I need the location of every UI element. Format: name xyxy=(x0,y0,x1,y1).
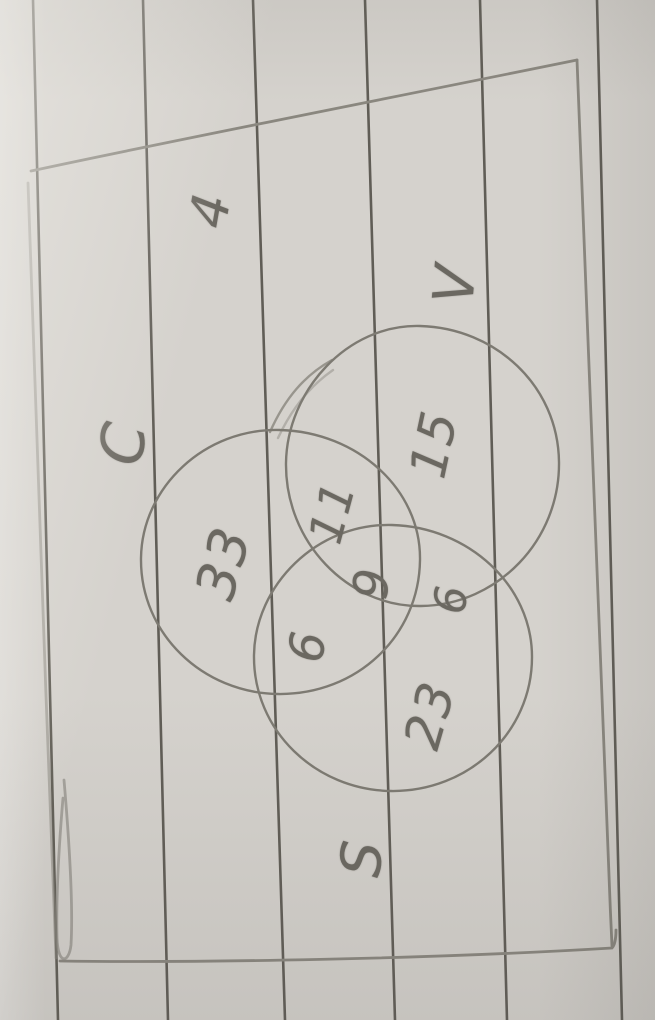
ruled-line xyxy=(143,0,168,1020)
set-label-c: C xyxy=(91,417,157,469)
region-value-c-s: 6 xyxy=(282,627,334,665)
ruled-line xyxy=(33,0,58,1020)
region-value-c-v-s: 9 xyxy=(346,564,397,601)
border-left xyxy=(28,183,56,958)
border-left-loop xyxy=(57,780,72,959)
border-top xyxy=(31,60,577,171)
ruled-line xyxy=(253,0,285,1020)
border-bottom xyxy=(60,930,616,961)
set-label-v: V xyxy=(426,261,485,306)
set-label-s: S xyxy=(333,836,393,879)
border-right xyxy=(577,60,612,946)
region-value-v-s: 6 xyxy=(429,582,476,616)
ruled-line xyxy=(480,0,507,1020)
paper-photo: C V S 4 33 11 9 6 6 15 23 xyxy=(0,0,655,1020)
region-value-v-only: 15 xyxy=(403,406,466,483)
